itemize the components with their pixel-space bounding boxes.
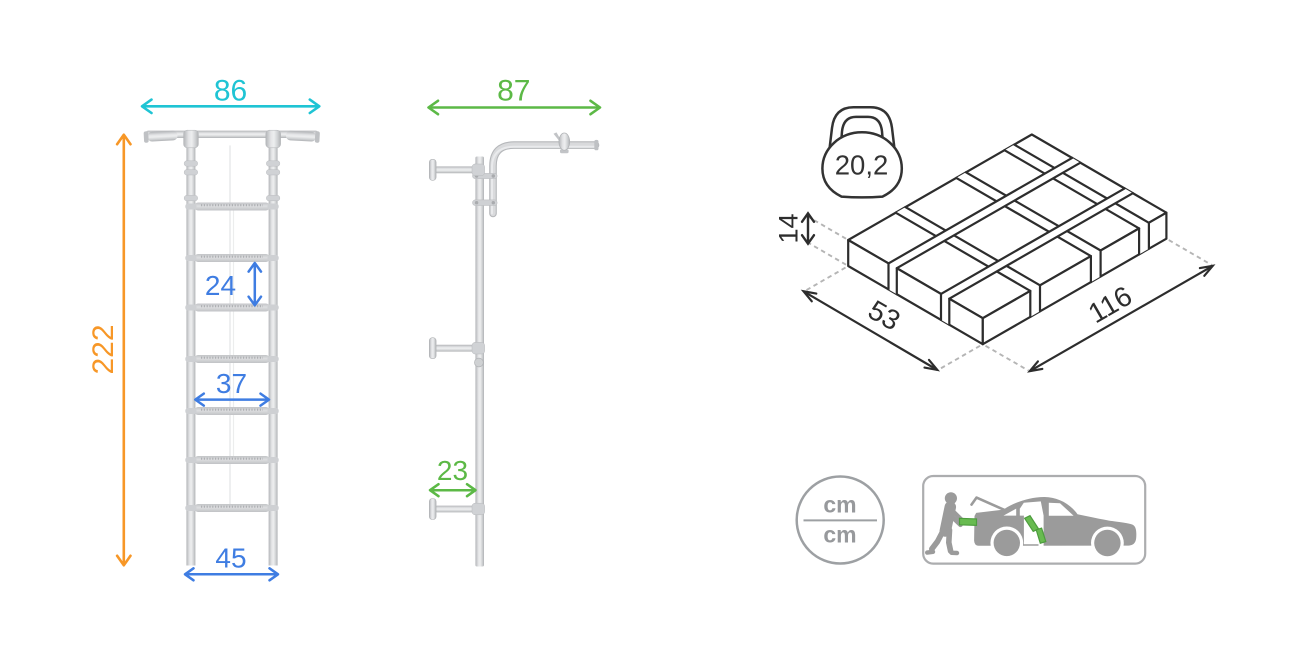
- svg-text:24: 24: [205, 270, 236, 301]
- svg-text:cm: cm: [823, 522, 856, 548]
- svg-text:222: 222: [87, 324, 120, 374]
- svg-text:86: 86: [214, 75, 247, 108]
- svg-text:14: 14: [774, 213, 804, 243]
- svg-text:37: 37: [216, 368, 247, 399]
- svg-text:45: 45: [215, 543, 246, 574]
- svg-text:87: 87: [497, 75, 530, 108]
- svg-text:20,2: 20,2: [835, 150, 889, 181]
- svg-text:cm: cm: [823, 492, 856, 518]
- svg-text:23: 23: [437, 455, 468, 486]
